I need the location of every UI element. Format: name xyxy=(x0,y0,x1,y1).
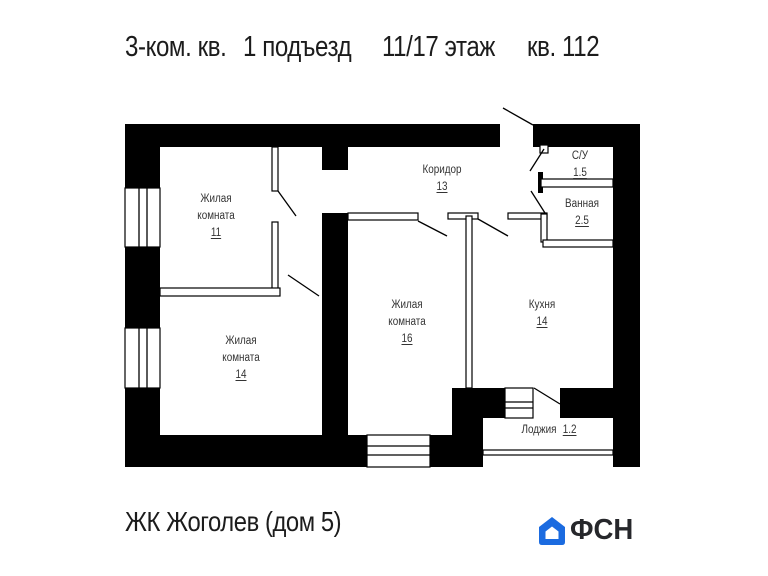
window-bottom-living3 xyxy=(367,435,430,467)
room-area: 2.5 xyxy=(530,213,633,230)
room-name: Жилая xyxy=(164,191,267,208)
partition-living1-right-lower xyxy=(272,222,278,292)
wall-loggia-left-top xyxy=(452,388,505,418)
loggia-rail xyxy=(483,450,613,455)
floorplan-page: 3-ком. кв. 1 подъезд 11/17 этаж кв. 112 xyxy=(0,0,768,576)
room-name: Коридор xyxy=(390,162,493,179)
wall-loggia-right-top xyxy=(560,388,613,418)
room-label-bathroom: Ванная 2.5 xyxy=(530,196,633,230)
partition-bathroom-bottom xyxy=(543,240,613,247)
partition-living3-top xyxy=(348,213,418,220)
living3-door-swing xyxy=(418,221,447,236)
room-label-wc: С/У 1.5 xyxy=(528,148,631,182)
loggia-door-swing xyxy=(534,388,560,404)
partition-living1-right-upper xyxy=(272,147,278,191)
window-left-upper xyxy=(125,188,160,247)
partition-living3-top-tee xyxy=(448,213,478,219)
room-name: Лоджия xyxy=(521,424,556,436)
room-label-living1: Жилая комната 11 xyxy=(164,191,267,242)
room-area: 16 xyxy=(355,331,458,348)
room-area: 14 xyxy=(189,367,292,384)
partition-living3-kitchen xyxy=(466,216,472,388)
room-label-loggia: Лоджия 1.2 xyxy=(497,422,600,439)
room-label-corridor: Коридор 13 xyxy=(390,162,493,196)
window-kitchen-loggia xyxy=(505,388,533,418)
room-area: 13 xyxy=(390,179,493,196)
room-area: 14 xyxy=(490,314,593,331)
room-name: Ванная xyxy=(530,196,633,213)
wall-center-vertical xyxy=(322,213,348,435)
room-name: комната xyxy=(164,208,267,225)
entrance-door-swing xyxy=(503,108,533,125)
fsn-house-icon xyxy=(536,515,568,547)
wall-left xyxy=(125,124,160,467)
room-label-living3: Жилая комната 16 xyxy=(355,297,458,348)
fsn-logo: ФСН xyxy=(536,514,637,547)
floorplan-drawing xyxy=(0,0,768,576)
room-area: 1.2 xyxy=(563,424,577,436)
wall-top-left xyxy=(125,124,500,147)
room-area: 11 xyxy=(164,225,267,242)
living2-door-swing xyxy=(288,275,319,296)
room-area: 1.5 xyxy=(528,165,631,182)
wall-loggia-left-side xyxy=(452,418,483,467)
window-left-lower xyxy=(125,328,160,388)
kitchen-door-swing xyxy=(478,219,508,236)
living1-door-swing xyxy=(278,191,296,216)
room-label-kitchen: Кухня 14 xyxy=(490,297,593,331)
door-swings xyxy=(278,108,560,404)
room-name: С/У xyxy=(528,148,631,165)
room-label-living2: Жилая комната 14 xyxy=(189,333,292,384)
room-name: комната xyxy=(355,314,458,331)
partition-living1-bottom xyxy=(160,288,280,296)
project-name: ЖК Жоголев (дом 5) xyxy=(125,506,341,538)
fsn-logo-text: ФСН xyxy=(570,514,633,547)
room-name: Кухня xyxy=(490,297,593,314)
wall-bottom-left xyxy=(125,435,367,467)
room-name: Жилая xyxy=(189,333,292,350)
room-name: Жилая xyxy=(355,297,458,314)
wall-center-stub xyxy=(322,145,348,170)
room-name: комната xyxy=(189,350,292,367)
